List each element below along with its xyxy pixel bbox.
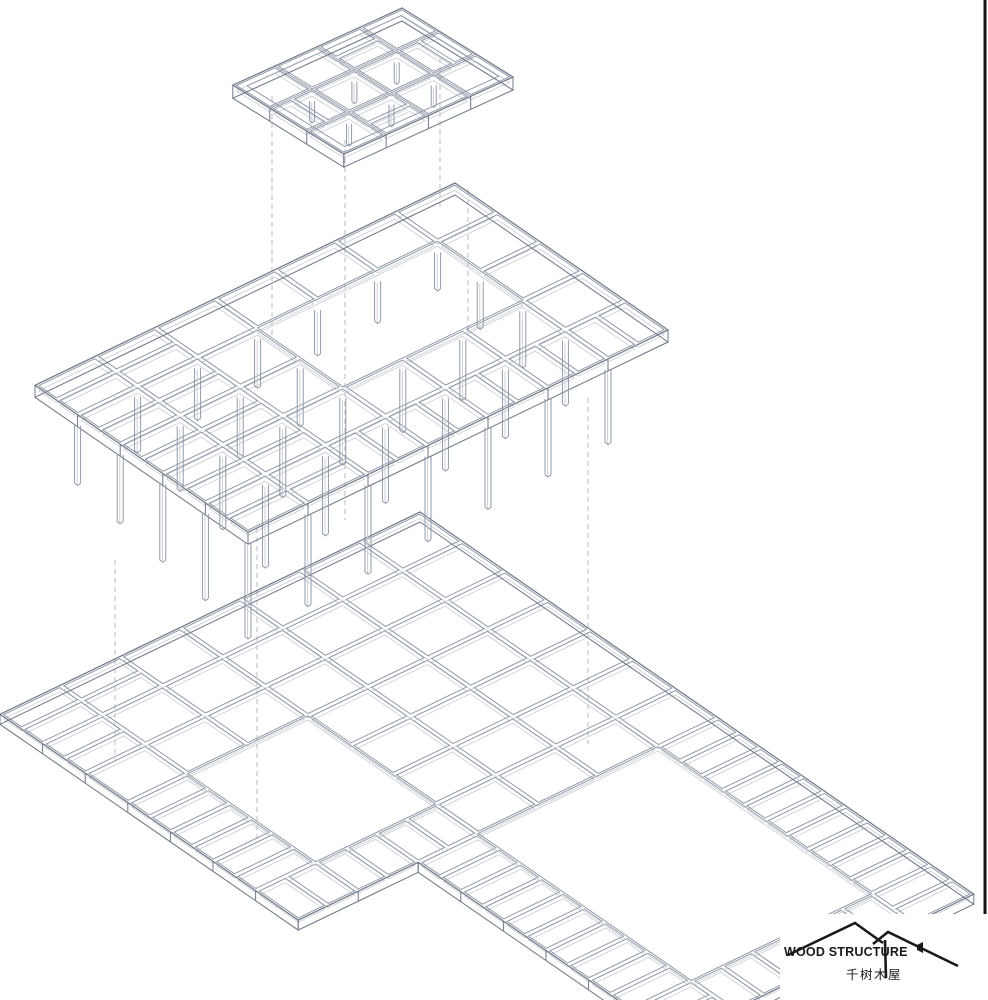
exploded-axonometric-drawing — [0, 0, 988, 1000]
upper-floor-frame — [35, 183, 668, 639]
brand-logo: WOOD STRUCTURE 千树木屋 — [780, 914, 988, 1000]
upper-floor-frame-columns — [75, 252, 611, 639]
brand-name-en: WOOD STRUCTURE — [784, 945, 888, 959]
brand-name-zh: 千树木屋 — [826, 964, 922, 983]
roof-frame — [233, 8, 513, 167]
drawing-canvas: WOOD STRUCTURE 千树木屋 — [0, 0, 988, 1000]
